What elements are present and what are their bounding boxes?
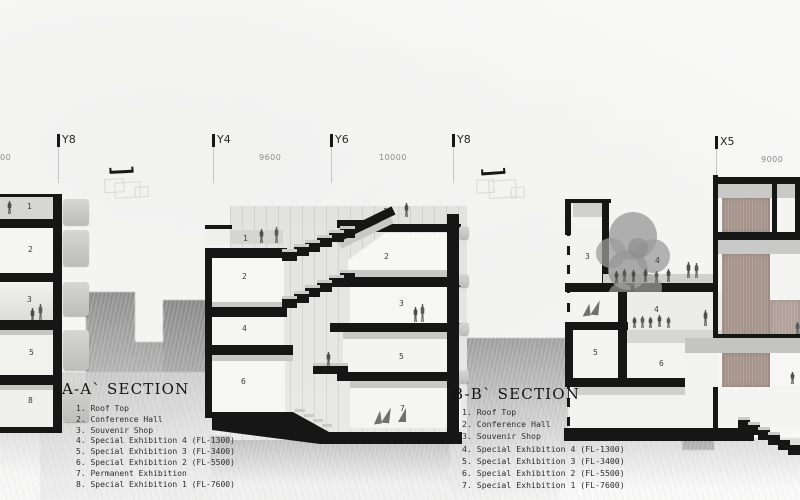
room-label: 5 <box>29 348 34 357</box>
stair-tread <box>768 432 780 435</box>
section-cut-icon <box>481 171 505 176</box>
legend-item: 1. Roof Top <box>462 406 625 418</box>
stair-tread <box>340 226 355 229</box>
section-b-title: B-B` SECTION <box>452 385 580 403</box>
ceiling-band <box>685 338 800 353</box>
ceiling-band <box>718 240 800 254</box>
stair-tread <box>329 230 344 233</box>
building-outline <box>510 187 525 199</box>
legend-item: 1. Roof Top <box>76 404 235 415</box>
room <box>205 229 230 245</box>
grid-marker-tick <box>212 134 215 147</box>
ceiling-band <box>350 381 460 388</box>
slab <box>713 232 800 240</box>
room-label: 5 <box>399 352 404 361</box>
wall <box>565 199 571 235</box>
stair-tread <box>340 270 355 273</box>
staircase <box>788 445 800 455</box>
room-label: 4 <box>654 305 659 314</box>
room <box>343 339 451 372</box>
grid-marker-tick <box>330 134 333 147</box>
room-label: 2 <box>384 252 389 261</box>
slab <box>205 248 287 258</box>
stair-tread <box>317 280 332 283</box>
room <box>627 292 722 330</box>
stair-tread <box>758 427 770 430</box>
legend-item: 2. Conference Hall <box>76 415 235 426</box>
legend-item: 4. Special Exhibition 4 (FL-1300) <box>76 436 235 447</box>
room-label: 2 <box>28 245 33 254</box>
stair-tread <box>305 285 320 288</box>
building-outline <box>134 186 149 198</box>
grid-line <box>331 147 332 183</box>
stair-block <box>63 330 89 370</box>
stair-tread <box>322 424 332 427</box>
room-label: 3 <box>27 295 32 304</box>
stair-tread <box>294 244 309 247</box>
landing <box>313 366 348 374</box>
dimension-label: 9600 <box>259 153 281 162</box>
sculpture-icon <box>581 304 590 317</box>
section-a-legend: 1. Roof Top 2. Conference Hall 3. Souven… <box>76 404 235 490</box>
grid-marker-label: X5 <box>720 135 735 148</box>
slab <box>205 345 293 355</box>
legend-item: 5. Special Exhibition 3 (FL-3400) <box>462 455 625 467</box>
ceiling-band <box>343 332 451 339</box>
room-label: 5 <box>593 348 598 357</box>
room-label: 4 <box>242 324 247 333</box>
room <box>0 390 53 427</box>
legend-item: 4. Special Exhibition 4 (FL-1300) <box>462 443 625 455</box>
room-label: 6 <box>241 377 246 386</box>
wall <box>565 322 573 379</box>
stair-block <box>63 282 89 316</box>
slab <box>337 277 461 287</box>
room-label: 3 <box>399 299 404 308</box>
legend-item: 6. Special Exhibition 2 (FL-5500) <box>462 467 625 479</box>
wall <box>205 248 212 418</box>
legend-item: 7. Permanent Exhibition <box>76 469 235 480</box>
dimension-label: 10000 <box>379 153 407 162</box>
legend-item: 8. Special Exhibition 1 (FL-7600) <box>76 480 235 491</box>
room <box>627 343 685 378</box>
legend-item: 6. Special Exhibition 2 (FL-5500) <box>76 458 235 469</box>
stair-tread <box>305 240 320 243</box>
grid-marker-tick <box>57 134 60 147</box>
stair-tread <box>317 235 332 238</box>
stair-tread <box>329 275 344 278</box>
stair-block <box>459 370 469 383</box>
slab <box>337 372 461 381</box>
grid-line <box>453 147 454 183</box>
room-label: 4 <box>655 256 660 265</box>
legend-item: 2. Conference Hall <box>462 418 625 430</box>
stair-block <box>459 322 469 335</box>
legend-item: 5. Special Exhibition 3 (FL-3400) <box>76 447 235 458</box>
stair-tread <box>282 249 297 252</box>
stair-tread <box>313 419 323 422</box>
stair-tread <box>748 422 760 425</box>
keyplan-icon <box>99 159 156 202</box>
ceiling-band <box>349 270 459 277</box>
section-cut-icon <box>131 167 133 172</box>
room <box>0 335 53 375</box>
left-section-drawing: 1 2 3 5 8 <box>0 192 95 435</box>
brick-wall-panel <box>722 198 770 232</box>
legend-item: 3. Souvenir Shop <box>462 430 625 442</box>
slab <box>205 307 287 317</box>
brick-wall-panel <box>722 353 770 387</box>
room-label: 1 <box>27 202 32 211</box>
grid-marker-tick <box>452 134 455 147</box>
room <box>770 254 800 300</box>
ceiling-band <box>718 184 800 198</box>
brick-wall-panel <box>770 300 800 338</box>
room <box>718 387 800 427</box>
grid-line <box>213 147 214 183</box>
legend-item: 7. Special Exhibition 1 (FL-7600) <box>462 479 625 491</box>
section-cut-icon <box>110 170 134 174</box>
room-label: 8 <box>28 396 33 405</box>
grid-marker-label: Y4 <box>217 133 231 146</box>
room <box>0 228 53 273</box>
stair-tread <box>304 414 314 417</box>
section-cut-icon <box>503 168 505 173</box>
person-figure <box>790 372 795 384</box>
stair-block <box>459 274 469 287</box>
section-a-title: A-A` SECTION <box>62 380 189 398</box>
grid-marker-label: Y8 <box>457 133 471 146</box>
grid-marker-label: Y8 <box>62 133 76 146</box>
legend-item: 3. Souvenir Shop <box>76 426 235 437</box>
grid-marker-tick <box>715 136 718 149</box>
wall <box>618 292 627 324</box>
wall <box>618 322 627 378</box>
sculpture-icon <box>590 300 599 316</box>
room-label: 6 <box>659 359 664 368</box>
room-label: 1 <box>243 234 248 243</box>
room-label: 3 <box>585 252 590 261</box>
section-b-legend: 1. Roof Top 2. Conference Hall 3. Souven… <box>462 406 625 491</box>
sculpture-icon <box>381 407 391 424</box>
slab <box>330 323 461 332</box>
stair-tread <box>294 291 309 294</box>
stair-tread <box>738 417 750 420</box>
brick-wall-panel <box>722 254 770 338</box>
drawing-sheet: Y8 Y4 Y6 Y8 X5 00 9600 10000 9000 1 2 3 <box>0 0 800 500</box>
roof-slab <box>713 177 800 184</box>
grid-line <box>58 147 59 183</box>
stair-block <box>63 230 89 266</box>
sculpture-icon <box>398 408 406 422</box>
wall <box>53 194 62 433</box>
dimension-label: 00 <box>0 153 11 162</box>
stair-block <box>459 226 469 239</box>
stair-tread <box>295 409 305 412</box>
section-a-drawing: 1 2 4 6 1 2 3 5 7 <box>203 196 470 446</box>
grid-marker-label: Y6 <box>335 133 349 146</box>
stair-block <box>63 199 89 225</box>
stair-tread <box>282 296 297 299</box>
keyplan-icon <box>473 158 534 206</box>
room-label: 2 <box>242 272 247 281</box>
